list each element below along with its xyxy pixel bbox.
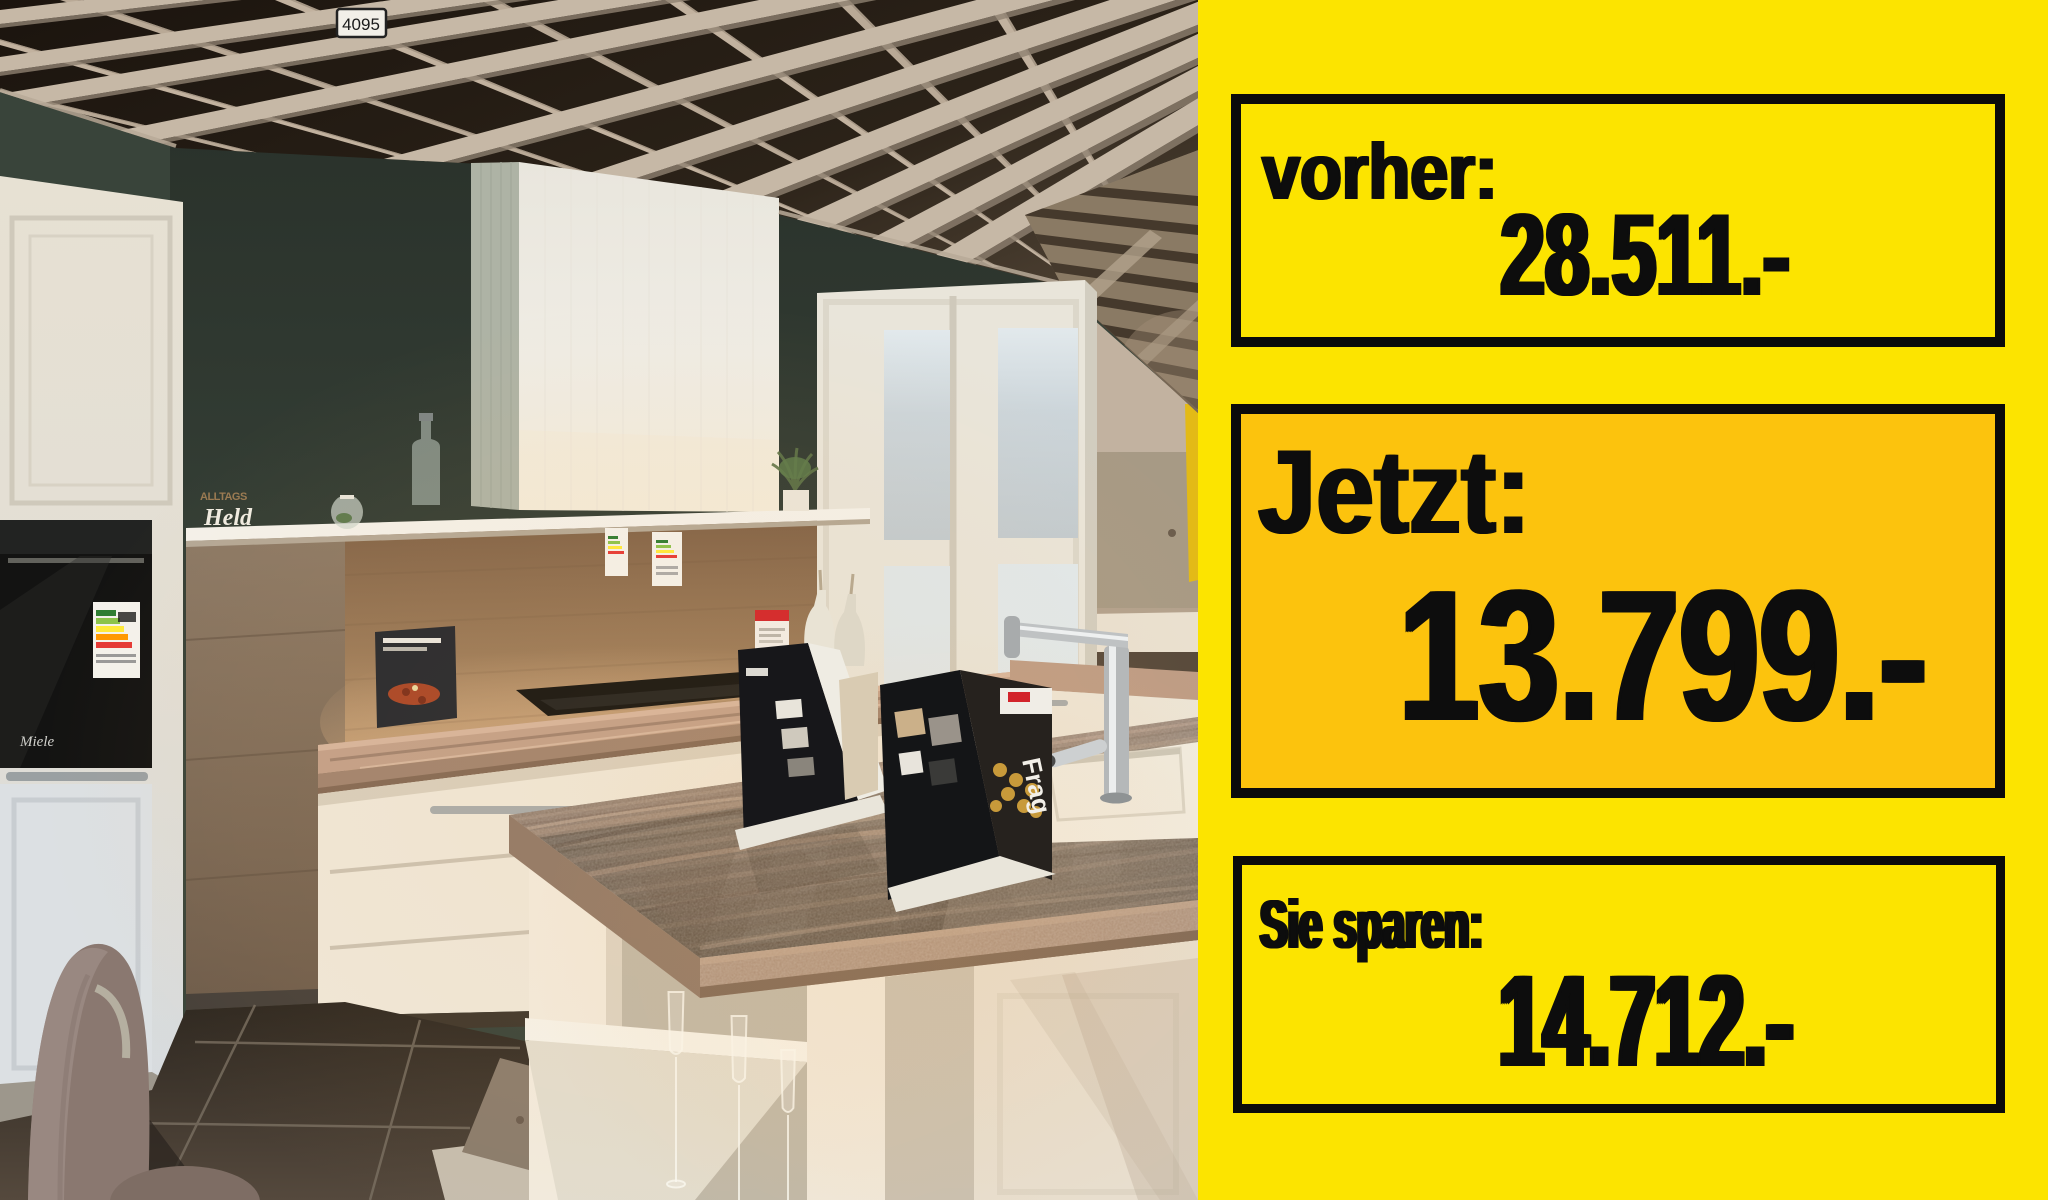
svg-text:4095: 4095 <box>342 15 380 34</box>
